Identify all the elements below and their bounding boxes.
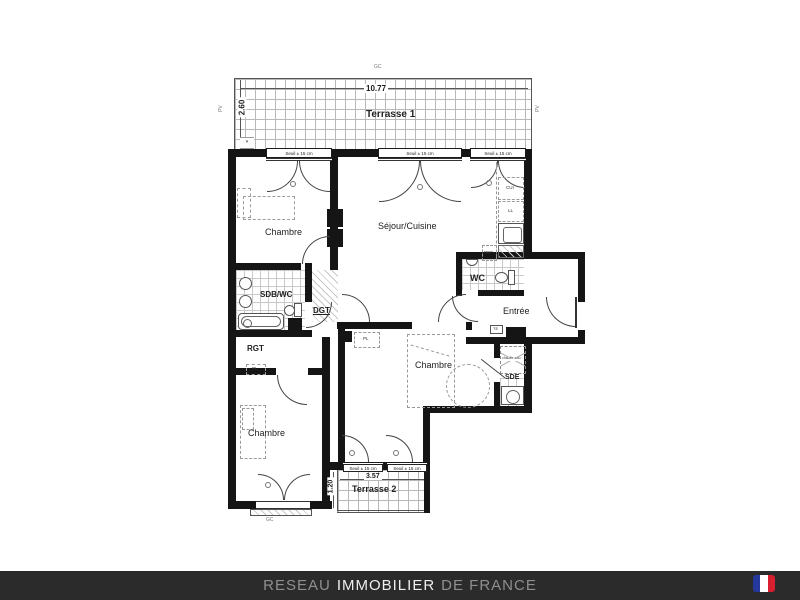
window-symbol — [290, 181, 296, 187]
technical-shaft — [506, 327, 526, 338]
furniture-outline — [237, 188, 251, 218]
sink-drainer — [498, 245, 524, 258]
kitchen-counter-line — [496, 162, 497, 258]
window-glazing — [256, 501, 310, 509]
washbasin — [239, 277, 252, 290]
cooker-label: CUI — [506, 186, 514, 191]
window-threshold-label: Seuil ± 15 cm — [266, 148, 332, 158]
window-symbol — [349, 450, 355, 456]
window-symbol — [393, 450, 399, 456]
window-swing — [379, 161, 420, 202]
room-label-bedroom1: Chambre — [265, 227, 302, 237]
shower-tray — [501, 386, 524, 405]
window-threshold-label: Seuil ± 15 cm — [387, 464, 427, 472]
room-label-bedroom3: Chambre — [248, 428, 285, 438]
door-swing — [277, 375, 307, 405]
entrance-door-swing — [546, 297, 576, 327]
guardrail-label: GC — [266, 518, 274, 523]
room-label-bathroom: SDB/WC — [260, 290, 292, 299]
terrace-1-width-dim: 10.77 — [364, 84, 388, 93]
entrance-door-leaf — [575, 297, 577, 328]
room-label-entry: Entrée — [503, 306, 530, 316]
room-label-living: Séjour/Cuisine — [378, 221, 437, 231]
terrace-1-pv-left-label: PV — [219, 105, 224, 112]
kitchen-sink — [498, 223, 524, 244]
brand-prefix: RESEAU — [263, 577, 331, 594]
wall — [228, 330, 312, 337]
window-symbol — [417, 184, 423, 190]
brand-main: IMMOBILIER — [337, 577, 435, 594]
electrical-panel-label: TE — [493, 327, 498, 331]
window-threshold-label: Seuil ± 15 cm — [343, 464, 383, 472]
window-threshold-label: Seuil ± 15 cm — [470, 148, 526, 158]
window-swing — [386, 435, 413, 462]
duct-box — [327, 209, 343, 227]
window-threshold-label: Seuil ± 15 cm — [378, 148, 462, 158]
door-swing — [342, 294, 370, 322]
wall — [228, 149, 236, 509]
round-furniture-outline — [446, 364, 490, 408]
room-label-storage: RGT — [247, 344, 264, 353]
furniture-outline — [242, 408, 254, 430]
fridge-label: REF — [484, 251, 493, 256]
terrace-2-depth-dim: 1.20 — [327, 478, 334, 496]
brand-suffix: DE FRANCE — [441, 577, 537, 594]
floor-plan-page: 10.77 2.60 Terrasse 1 GC PV PV ▾ Seuil ±… — [0, 0, 800, 600]
room-label-wc: WC — [470, 273, 485, 283]
closet-label: PL — [363, 337, 369, 342]
water-heater-label: chauffe-eau — [502, 357, 520, 361]
closet-label: PL — [252, 367, 258, 372]
terrace-1-guardrail-label: GC — [374, 65, 382, 70]
terrace-1-pv-right-label: PV — [536, 105, 541, 112]
footer-bar: RESEAU IMMOBILIER DE FRANCE — [0, 571, 800, 600]
washbasin — [239, 295, 252, 308]
wc-toilet-tank — [508, 270, 515, 285]
window-swing — [267, 161, 298, 192]
duct-box — [340, 331, 352, 342]
window-swing — [420, 161, 461, 202]
washing-machine-label: LL — [508, 209, 513, 214]
window-glazing — [378, 158, 462, 161]
window-glazing — [266, 158, 332, 161]
wall — [466, 322, 472, 330]
wall — [478, 290, 524, 296]
terrace-1-label: Terrasse 1 — [366, 109, 415, 120]
wall — [578, 252, 585, 302]
terrace-2-dim-line-h — [340, 479, 424, 480]
wall — [337, 322, 412, 329]
terrace-1-depth-dim: 2.60 — [237, 98, 246, 118]
window-swing — [342, 435, 369, 462]
window-swing — [284, 474, 310, 500]
wall — [466, 337, 524, 344]
france-flag-icon — [753, 575, 775, 592]
wc-toilet-bowl — [495, 272, 508, 283]
window-swing — [299, 161, 330, 192]
terrace-2-label: Terrasse 2 — [352, 484, 396, 494]
wall — [524, 337, 585, 344]
window-swing — [471, 161, 498, 188]
room-label-hallway: DGT — [313, 306, 330, 315]
door-swing — [302, 236, 330, 264]
room-label-shower-room: SDE — [505, 374, 519, 381]
technical-shaft — [288, 318, 302, 331]
toilet-bowl — [284, 305, 295, 316]
wall — [423, 406, 430, 513]
wall — [524, 149, 532, 259]
window-symbol — [486, 180, 492, 186]
room-label-bedroom2: Chambre — [415, 360, 452, 370]
toilet-tank — [294, 303, 302, 317]
bathtub — [238, 313, 284, 330]
balcony-sill — [250, 509, 312, 516]
window-swing — [258, 474, 284, 500]
door-opening — [276, 368, 308, 375]
terrace-2-width-dim: 3.57 — [364, 473, 382, 480]
window-glazing — [470, 158, 526, 161]
window-symbol — [265, 482, 271, 488]
terrace-drain-icon: ▾ — [240, 137, 254, 149]
